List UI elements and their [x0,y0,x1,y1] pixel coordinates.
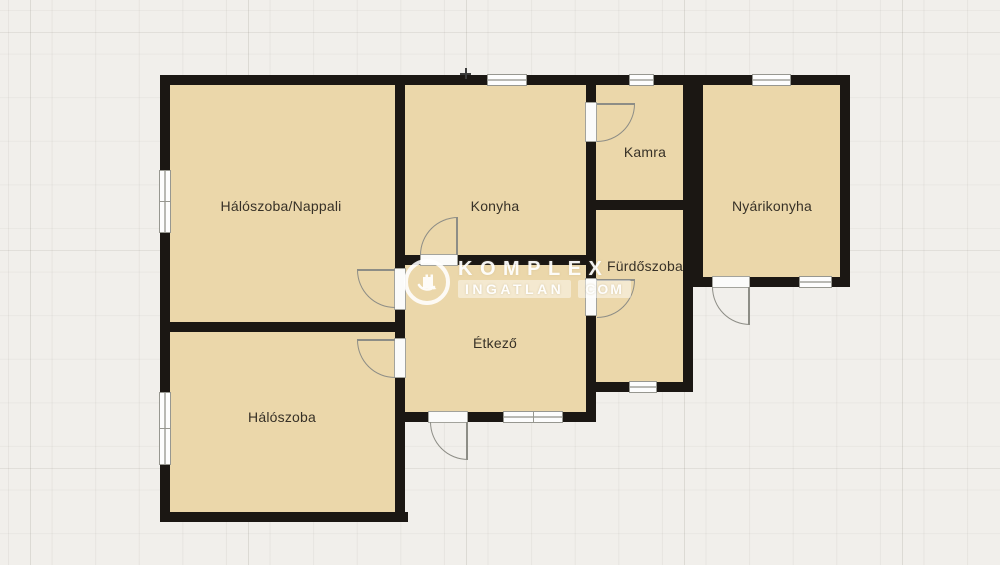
wall-nyarikonyha-left [693,75,703,287]
room-label-nyarikonyha: Nyárikonyha [732,198,812,214]
watermark-brand-sub: INGATLAN [458,280,571,298]
door-arc-nyarikonyha-exterior [712,287,750,325]
watermark-band-row: INGATLAN COM [458,280,631,298]
door-haloszoba-etkezo [394,338,406,378]
room-fill-kamra [592,81,687,204]
door-leaf-etkezo-exterior [466,422,468,460]
wall-haloszoba-bottom [160,512,408,522]
room-label-haloszoba: Hálószoba [248,409,316,425]
window-nyarikonyha-bottom [799,276,832,288]
room-label-etkezo: Étkező [473,335,517,351]
floorplan-canvas: Hálószoba/Nappali Konyha Kamra Nyárikony… [0,0,1000,565]
wall-kamra-bottom [586,200,693,210]
window-furdoszoba-bottom [629,381,657,393]
window-etkezo-bottom-right [533,411,563,423]
door-leaf-haloszoba [357,339,395,341]
window-left-haloszoba-lower [159,428,171,465]
room-label-konyha: Konyha [471,198,520,214]
door-leaf-konyha [456,217,458,255]
komplex-ingatlan-logo-icon [404,259,450,305]
watermark-brand-tld: COM [578,280,631,298]
window-etkezo-bottom-left [503,411,534,423]
window-left-haloszoba-upper [159,392,171,429]
room-label-kamra: Kamra [624,144,666,160]
crosshair-marker-icon [460,68,471,79]
wall-nappali-bottom [160,322,405,332]
door-arc-etkezo-exterior [430,422,468,460]
window-top-konyha [487,74,527,86]
door-konyha-kamra [585,102,597,142]
wall-etkezo-bottom [395,412,596,422]
room-label-haloszoba-nappali: Hálószoba/Nappali [221,198,342,214]
watermark: KOMPLEX INGATLAN COM [404,259,631,305]
door-leaf-nyarikonyha-exterior [748,287,750,325]
window-top-nyarikonyha [752,74,791,86]
watermark-brand: KOMPLEX [458,259,631,279]
window-left-nappali-upper [159,170,171,202]
door-leaf-kamra [597,103,635,105]
wall-house-right [683,75,693,392]
watermark-text: KOMPLEX INGATLAN COM [458,259,631,298]
window-top-kamra [629,74,654,86]
door-leaf-nappali [357,269,395,271]
window-left-nappali-lower [159,201,171,233]
room-fill-nyarikonyha [699,81,844,281]
wall-nyarikonyha-right [840,75,850,287]
building-icon [413,268,441,296]
